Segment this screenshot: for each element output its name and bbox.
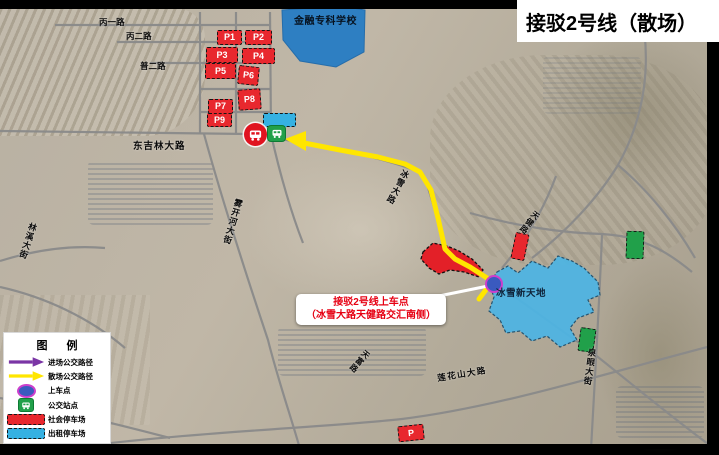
legend: 图 例 进场公交路径 散场公交路径 上车点 公交站点 社会停车场 出租停车场 — [3, 332, 111, 444]
legend-label: 散场公交路径 — [48, 371, 93, 382]
legend-row-boarding: 上车点 — [4, 384, 110, 398]
parking-lot-p6: P6 — [237, 65, 260, 86]
road-label-puer: 普二路 — [140, 60, 166, 72]
parking-lot-p4: P4 — [242, 48, 275, 64]
taxi-parking-icon — [4, 428, 48, 439]
purple-arrow-icon — [4, 356, 48, 368]
parking-lot-p7: P7 — [208, 99, 233, 114]
parking-lot-p8: P8 — [237, 88, 261, 111]
frame-bottom — [0, 444, 719, 449]
boarding-point-icon — [4, 384, 48, 398]
bus-icon — [271, 128, 283, 139]
parking-lot-p5: P5 — [205, 63, 236, 79]
parking-lot-south: P — [397, 424, 425, 443]
legend-row-inbound: 进场公交路径 — [4, 355, 110, 369]
school-area-label: 金融专科学校 — [294, 12, 357, 27]
road-label-dongjilin: 东吉林大路 — [133, 138, 186, 152]
bus-station-icon — [4, 398, 48, 412]
parking-lot-p3: P3 — [206, 47, 238, 63]
title-box: 接驳2号线（散场） — [517, 0, 719, 42]
bus-stop-red-icon — [244, 123, 267, 146]
green-parking-box-east — [626, 231, 645, 260]
legend-label: 进场公交路径 — [48, 357, 93, 368]
callout-line2: （冰雪大路天健路交汇南侧） — [298, 310, 444, 323]
frame-right — [707, 0, 719, 449]
legend-label: 上车点 — [48, 385, 71, 396]
legend-title: 图 例 — [4, 337, 110, 353]
legend-label: 社会停车场 — [48, 414, 86, 425]
legend-label: 出租停车场 — [48, 428, 86, 439]
callout-line1: 接驳2号线上车点 — [298, 297, 444, 310]
legend-row-busstop: 公交站点 — [4, 398, 110, 412]
parking-lot-p1: P1 — [217, 30, 242, 45]
boarding-point-callout: 接驳2号线上车点 （冰雪大路天健路交汇南侧） — [296, 294, 446, 325]
bus-stop-green-icon — [267, 125, 286, 142]
road-label-binger: 丙二路 — [126, 30, 152, 42]
yellow-arrow-icon — [4, 370, 48, 382]
legend-row-taxi-parking: 出租停车场 — [4, 427, 110, 441]
legend-row-outbound: 散场公交路径 — [4, 369, 110, 383]
legend-label: 公交站点 — [48, 400, 78, 411]
bus-icon — [248, 128, 263, 142]
social-parking-icon — [4, 414, 48, 425]
parking-lot-p9: P9 — [207, 113, 232, 127]
parking-lot-p2: P2 — [245, 30, 272, 45]
shuttle-route-yellow — [285, 131, 488, 299]
page-title: 接驳2号线（散场） — [526, 7, 697, 36]
venue-area-label: 冰雪新天地 — [496, 285, 546, 299]
legend-row-social-parking: 社会停车场 — [4, 412, 110, 426]
road-label-bingyi: 丙一路 — [99, 16, 125, 28]
